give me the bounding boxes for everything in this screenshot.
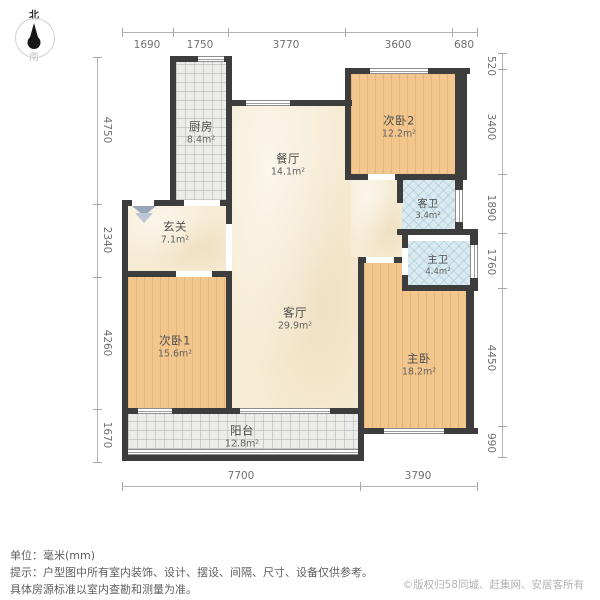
dim-label: 3600 [385,39,412,51]
footer-unit: 单位：毫米(mm) [10,547,95,563]
balcony-door-marker [240,408,330,414]
dim-tick [477,482,478,491]
dim-label: 4260 [101,330,113,357]
dim-tick [93,409,102,410]
window-marker [470,245,478,278]
footer-tip-line2: 具体房源标准以室内查勘和测量为准。 [10,581,197,597]
room-label-entry: 玄关7.1m² [161,219,189,246]
dim-tick [173,28,174,37]
dim-line-bottom [122,486,477,487]
wall [394,257,402,263]
dim-tick [452,28,453,37]
dim-label: 1760 [485,249,497,276]
entrance-door-icon [132,206,156,224]
room-label-bedroom1: 次卧115.6m² [158,333,192,360]
dim-label: 1890 [485,195,497,222]
dim-label: 1690 [134,39,161,51]
wall [358,257,364,461]
dim-label: 4750 [101,117,113,144]
room-label-kitchen: 厨房8.4m² [187,119,215,146]
dim-label: 3400 [485,114,497,141]
room-label-living: 客厅29.9m² [278,305,312,332]
dim-tick [360,482,361,491]
wall [455,222,463,235]
dim-tick [477,28,478,37]
wall [122,271,176,277]
wall [122,455,364,461]
window-marker [246,100,290,106]
wall [402,275,408,291]
compass: 北 南 [8,4,60,62]
wall [122,202,128,461]
wall [345,68,351,180]
wall [466,291,474,434]
wall [455,68,467,180]
dim-tick [93,57,102,58]
wall [397,229,478,235]
dim-tick [498,457,507,458]
window-marker [138,408,172,414]
window-marker [384,428,444,434]
compass-south-label: 南 [29,49,39,64]
room-corridor-floor [351,180,402,257]
dim-line-left [97,57,98,462]
wall [397,174,403,203]
dim-tick [93,204,102,205]
dim-tick [498,53,507,54]
wall [402,235,408,248]
footer-tip-line1: 提示：户型图中所有室内装饰、设计、摆设、间隔、尺寸、设备仅供参考。 [10,564,373,580]
window-marker [198,56,224,62]
dim-label: 990 [485,433,497,453]
dim-tick [498,69,507,70]
room-label-master-bedroom: 主卧18.2m² [402,351,436,378]
dim-tick [228,28,229,37]
wall [226,271,232,414]
window-marker [455,190,463,222]
dim-label: 3790 [405,470,432,482]
compass-needle-icon [27,23,41,50]
dim-tick [345,28,346,37]
wall [226,56,232,224]
dim-tick [498,233,507,234]
room-label-guest-bath: 客卫3.4m² [415,198,440,222]
dim-line-right [502,53,503,457]
room-label-dining: 餐厅14.1m² [271,151,305,178]
room-label-master-bath: 主卫4.4m² [425,254,450,278]
wall [470,278,478,291]
dim-label: 1670 [101,422,113,449]
dim-label: 4450 [485,345,497,372]
copyright-notice: ©版权归58同城、赶集网、安居客所有 [403,577,584,592]
dim-label: 1750 [187,39,214,51]
window-marker [370,68,428,74]
floorplan-page: { "compass": {"north": "北", "south": "南"… [0,0,600,600]
dim-tick [498,288,507,289]
wall [170,56,176,206]
dim-tick [93,277,102,278]
dim-tick [122,482,123,491]
dim-label: 520 [485,56,497,76]
wall [455,174,463,190]
dim-tick [498,426,507,427]
room-master-floor-a [364,263,402,428]
dim-label: 680 [454,39,474,51]
dim-label: 7700 [228,470,255,482]
dim-tick [93,462,102,463]
dim-label: 2340 [101,227,113,254]
room-label-balcony: 阳台12.8m² [225,423,259,450]
dim-line-top [122,32,477,33]
wall [395,174,461,180]
wall [154,200,184,206]
wall [470,229,478,245]
dim-tick [122,28,123,37]
wall [290,100,352,106]
dim-label: 3770 [273,39,300,51]
room-label-bedroom2: 次卧212.2m² [382,113,416,140]
dim-tick [498,174,507,175]
